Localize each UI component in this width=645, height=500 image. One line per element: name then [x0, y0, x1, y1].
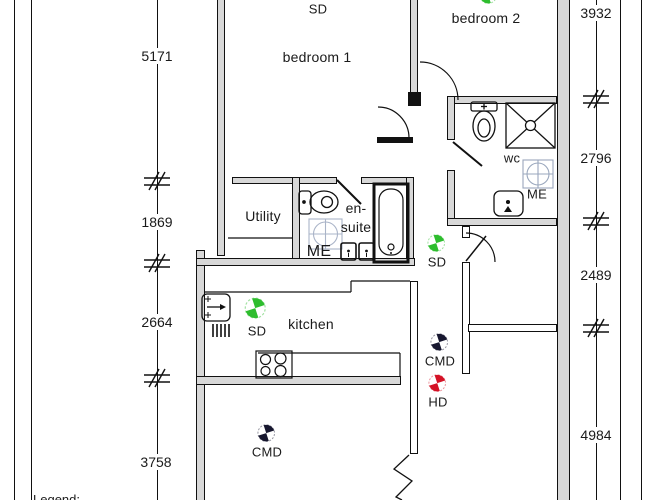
door-jamb [408, 92, 421, 106]
dimension-label: 2664 [138, 314, 175, 330]
room-label-ensuite-line2: suite [341, 218, 372, 237]
toilet-icon-wc [471, 102, 497, 141]
equipment-label-me-ensuite: ME [307, 243, 331, 261]
room-label-utility: Utility [245, 208, 281, 224]
dimension-label: 3932 [577, 5, 614, 21]
dimension-label: 2489 [577, 267, 614, 283]
door-arc-bedroom1 [378, 107, 409, 138]
room-label-bedroom1: bedroom 1 [283, 49, 352, 65]
door-arc-lower-room [466, 233, 495, 262]
room-label-ensuite-line1: en- [341, 199, 372, 218]
sink-icon-wc [494, 191, 523, 216]
wall-break-zigzag [394, 455, 412, 500]
detector-label-sd-bedroom1: SD [309, 2, 327, 17]
shower-icon [506, 103, 555, 148]
equipment-label-me-wc: ME [527, 187, 547, 202]
door-leaf-wc [453, 142, 482, 166]
dimension-label: 3758 [137, 454, 174, 470]
dimension-label: 5171 [138, 48, 175, 64]
legend-title: Legend: [33, 492, 80, 500]
sink-icons-ensuite [341, 243, 374, 260]
dimension-label: 2796 [577, 150, 614, 166]
room-label-bedroom2: bedroom 2 [452, 10, 521, 26]
dimension-label: 4984 [577, 427, 614, 443]
bathtub-icon [374, 184, 408, 262]
room-label-kitchen: kitchen [288, 316, 334, 332]
me-icon-wc [523, 160, 553, 188]
toilet-icon-ensuite [299, 191, 338, 214]
room-label-wc: wc [504, 151, 520, 166]
stove-icon [256, 351, 292, 378]
room-label-ensuite: en- suite [341, 199, 372, 237]
door-leaf-lower-room [466, 236, 486, 261]
dimension-ticks [144, 90, 609, 387]
door-leaf-bedroom1 [377, 137, 413, 143]
floor-plan: SD bedroom 1 bedroom 2 Utility en- suite… [0, 0, 645, 500]
dimension-label: 1869 [138, 214, 175, 230]
sink-icon-kitchen [202, 294, 230, 321]
door-arc-bedroom2 [420, 62, 458, 100]
dishwasher-icon [213, 324, 229, 337]
